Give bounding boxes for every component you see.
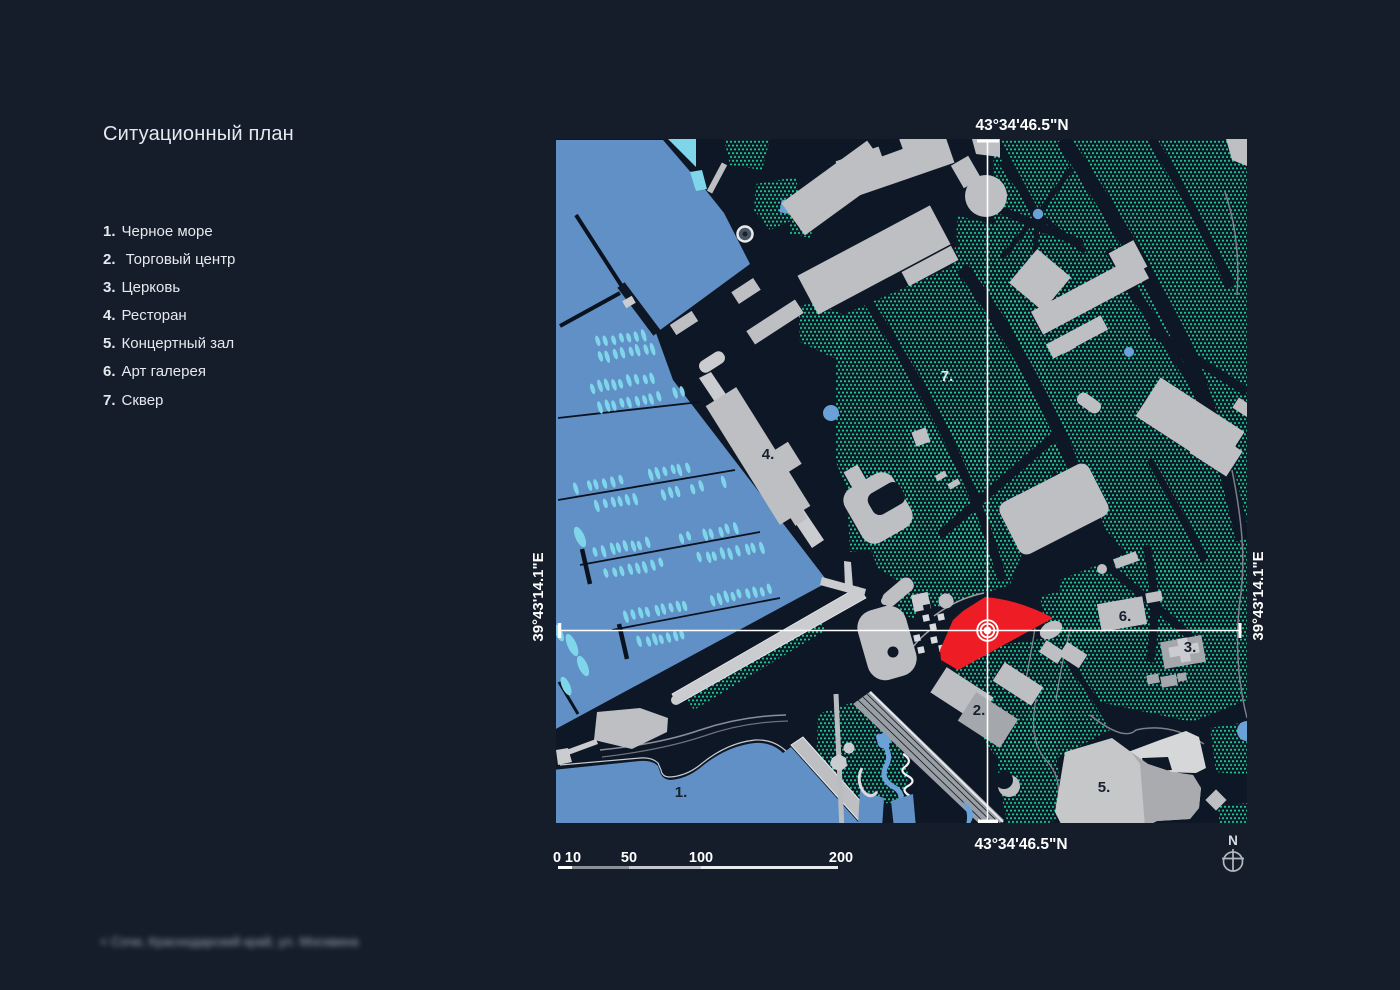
svg-text:4.: 4. [762, 446, 775, 463]
svg-text:5.: 5. [1098, 779, 1111, 796]
svg-text:7.: 7. [941, 368, 954, 385]
svg-text:N: N [1228, 833, 1238, 848]
svg-text:200: 200 [829, 850, 853, 866]
svg-text:1.: 1. [675, 784, 688, 801]
svg-text:2.: 2. [973, 702, 986, 719]
svg-text:10: 10 [565, 850, 581, 866]
svg-text:100: 100 [689, 850, 713, 866]
svg-text:50: 50 [621, 850, 637, 866]
svg-text:43°34'46.5"N: 43°34'46.5"N [974, 836, 1067, 853]
svg-text:0: 0 [553, 850, 561, 866]
svg-text:39°43'14.1"E: 39°43'14.1"E [530, 552, 547, 641]
svg-text:3.: 3. [1184, 639, 1197, 656]
svg-text:6.: 6. [1119, 608, 1132, 625]
svg-text:39°43'14.1"E: 39°43'14.1"E [1250, 551, 1267, 640]
svg-text:43°34'46.5"N: 43°34'46.5"N [975, 117, 1068, 134]
